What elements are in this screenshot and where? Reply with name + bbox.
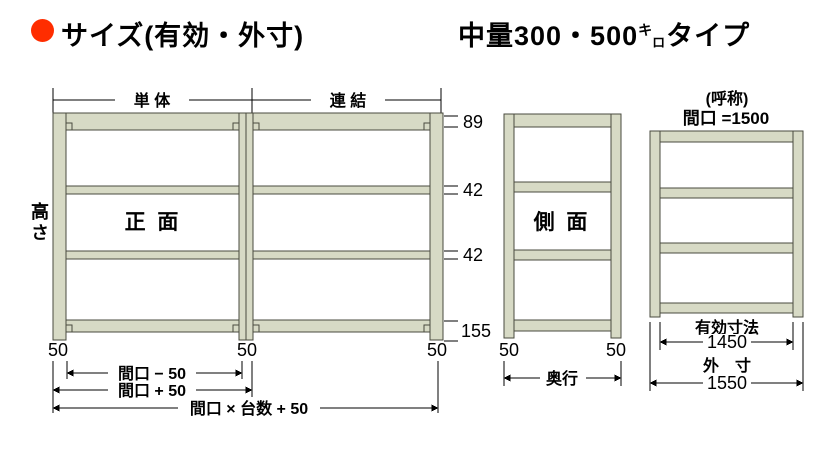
stage: サイズ(有効・外寸) 中量300・500キロタイプ 高さ 単 体 連 結 xyxy=(0,0,830,450)
unit-caption: (呼称) xyxy=(706,89,749,108)
single-unit-label: 単 体 xyxy=(134,91,171,110)
unit-nominal: 間口 =1500 xyxy=(683,109,769,128)
side-left-post xyxy=(504,114,514,338)
width-dim-row2: 間口 + 50 xyxy=(118,382,186,400)
side-shelf xyxy=(504,182,621,192)
beam-dim-mid2: 42 xyxy=(463,245,483,265)
width-dim-row1: 間口 − 50 xyxy=(118,365,186,383)
side-view: 側 面 50 50 奥行 xyxy=(499,114,626,388)
front-left-post xyxy=(53,113,66,340)
unit-view: (呼称) 間口 =1500 有効寸法 1450 外 寸 1550 xyxy=(650,89,803,393)
effective-dim-value: 1450 xyxy=(707,332,747,352)
side-bottom-shelf xyxy=(504,320,621,331)
bracket-notch xyxy=(253,123,259,130)
unit-bottom-beam xyxy=(660,303,793,313)
unit-top-beam xyxy=(650,131,803,142)
front-view-label: 正 面 xyxy=(125,211,182,234)
joined-unit-label: 連 結 xyxy=(330,91,366,110)
side-top-shelf xyxy=(504,114,621,127)
bracket-notch xyxy=(424,123,430,130)
bracket-notch xyxy=(233,325,239,332)
front-right-post xyxy=(430,113,443,340)
side-shelf xyxy=(504,250,621,260)
base-offset-middle: 50 xyxy=(237,340,257,360)
width-dim-row3: 間口 × 台数 + 50 xyxy=(190,399,308,418)
beam-dim-top: 89 xyxy=(463,112,483,132)
depth-dim-label: 奥行 xyxy=(546,369,578,388)
bracket-notch xyxy=(233,123,239,130)
bracket-notch xyxy=(424,325,430,332)
front-view: 単 体 連 結 正 面 xyxy=(48,88,491,418)
base-offset-right: 50 xyxy=(427,340,447,360)
base-offset-left: 50 xyxy=(48,340,68,360)
unit-left-post xyxy=(650,131,660,317)
outer-dim-value: 1550 xyxy=(707,373,747,393)
side-offset-right: 50 xyxy=(606,340,626,360)
unit-right-post xyxy=(793,131,803,317)
side-offset-left: 50 xyxy=(499,340,519,360)
unit-shelf xyxy=(660,188,793,198)
beam-dim-mid1: 42 xyxy=(463,180,483,200)
bracket-notch xyxy=(66,123,72,130)
side-view-label: 側 面 xyxy=(533,211,591,234)
unit-shelf xyxy=(660,243,793,253)
side-right-post xyxy=(611,114,621,338)
diagram-canvas: 単 体 連 結 正 面 xyxy=(0,0,830,450)
bracket-notch xyxy=(66,325,72,332)
beam-dim-bottom: 155 xyxy=(461,321,491,341)
bracket-notch xyxy=(253,325,259,332)
